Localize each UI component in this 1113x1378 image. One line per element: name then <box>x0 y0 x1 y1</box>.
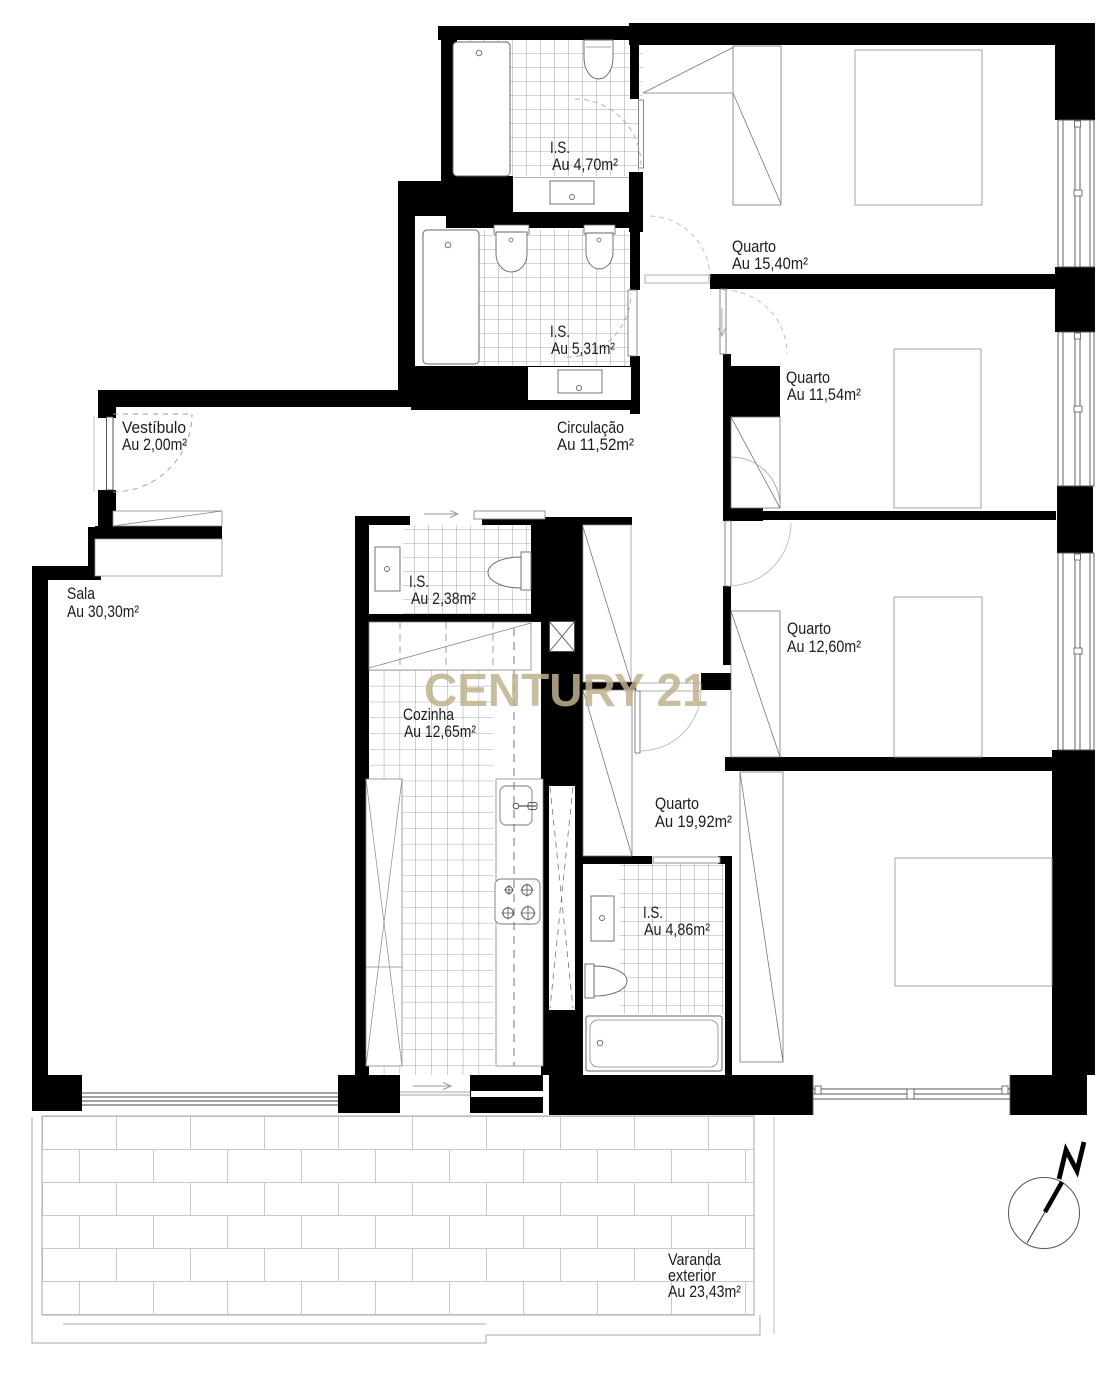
svg-text:Au 23,43m²: Au 23,43m² <box>668 1282 741 1301</box>
svg-text:Au 11,52m²: Au 11,52m² <box>557 435 634 454</box>
svg-text:Sala: Sala <box>67 584 95 603</box>
svg-text:Au 19,92m²: Au 19,92m² <box>655 812 732 831</box>
svg-text:Au 2,00m²: Au 2,00m² <box>122 435 187 454</box>
svg-text:Quarto: Quarto <box>655 794 699 813</box>
svg-text:Au 2,38m²: Au 2,38m² <box>411 589 476 608</box>
svg-text:Au 4,70m²: Au 4,70m² <box>552 155 618 174</box>
svg-text:Au 12,65m²: Au 12,65m² <box>404 722 476 741</box>
svg-text:Au 11,54m²: Au 11,54m² <box>787 385 861 404</box>
svg-text:Au 12,60m²: Au 12,60m² <box>787 637 861 656</box>
svg-text:Quarto: Quarto <box>787 619 831 638</box>
svg-text:Au 15,40m²: Au 15,40m² <box>732 254 808 273</box>
svg-text:Au 30,30m²: Au 30,30m² <box>67 602 139 621</box>
svg-text:Au 5,31m²: Au 5,31m² <box>551 339 615 358</box>
svg-text:CENTURY 21: CENTURY 21 <box>424 664 708 716</box>
svg-text:Au 4,86m²: Au 4,86m² <box>644 920 710 939</box>
